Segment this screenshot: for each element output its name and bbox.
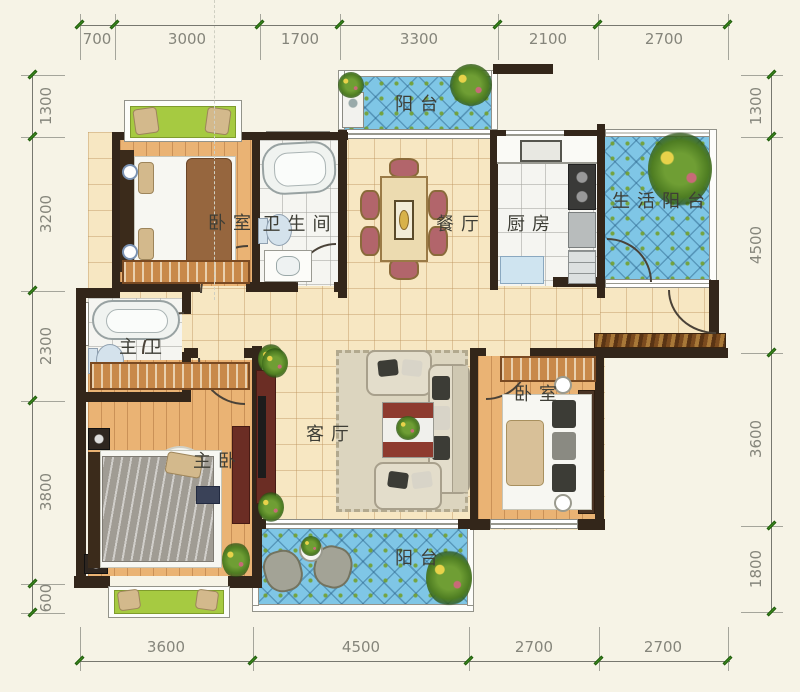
room-label-master-bath: 主卫 bbox=[119, 333, 169, 359]
dim-bottom-1: 4500 bbox=[342, 638, 380, 656]
dim-ext bbox=[741, 353, 783, 354]
dim-left-4: 600 bbox=[37, 584, 55, 613]
dim-top-3: 3300 bbox=[400, 30, 438, 48]
room-label-bedroom-top: 卧室 bbox=[208, 209, 258, 235]
plant bbox=[450, 64, 492, 106]
dining-chair bbox=[389, 158, 419, 178]
wall-segment bbox=[597, 124, 605, 298]
dim-line-bottom bbox=[80, 661, 730, 662]
wall-segment bbox=[74, 576, 110, 588]
dining-table bbox=[380, 176, 428, 262]
dim-line-top bbox=[80, 25, 730, 26]
wall-segment bbox=[597, 348, 728, 358]
sofa-cushion bbox=[387, 471, 409, 490]
room-label-living: 客厅 bbox=[306, 420, 356, 446]
dim-top-4: 2100 bbox=[529, 30, 567, 48]
bed-pillow-dark bbox=[552, 464, 576, 492]
dim-right-0: 1300 bbox=[747, 87, 765, 125]
bed-pillow-gray bbox=[552, 432, 576, 460]
wall-segment bbox=[334, 282, 347, 292]
sofa-cushion bbox=[401, 359, 423, 377]
bed-blanket bbox=[506, 420, 544, 486]
dim-right-2: 3600 bbox=[747, 420, 765, 458]
table-vase bbox=[399, 210, 409, 230]
entry-mat bbox=[594, 333, 726, 348]
dim-top-2: 1700 bbox=[281, 30, 319, 48]
tv bbox=[258, 396, 266, 478]
dim-left-3: 3800 bbox=[37, 473, 55, 511]
sofa-cushion bbox=[432, 376, 450, 400]
balcony-bottom-rail bbox=[252, 604, 474, 612]
sofa-cushion bbox=[432, 436, 450, 460]
master-wardrobe bbox=[90, 362, 250, 390]
bedside-lamp bbox=[122, 244, 138, 260]
dim-line-left bbox=[32, 75, 33, 613]
dim-line-right bbox=[771, 75, 772, 612]
room-label-bedroom-right: 卧室 bbox=[514, 380, 564, 406]
folded-clothes bbox=[196, 486, 220, 504]
wall-segment bbox=[578, 519, 605, 530]
coffee-table-accent bbox=[383, 442, 433, 457]
master-bathtub-inner bbox=[106, 309, 168, 333]
wall-segment bbox=[530, 348, 595, 356]
room-label-service-balcony: 生活阳台 bbox=[612, 187, 712, 213]
dim-bottom-3: 2700 bbox=[644, 638, 682, 656]
wall-segment bbox=[76, 288, 86, 588]
plant bbox=[338, 72, 364, 98]
room-label-balcony-top: 阳台 bbox=[395, 90, 445, 116]
bed-pillow bbox=[138, 162, 154, 194]
sofa-cushion bbox=[411, 471, 433, 490]
room-label-balcony-bottom: 阳台 bbox=[395, 544, 445, 570]
dim-ext bbox=[599, 627, 600, 671]
room-label-kitchen: 厨房 bbox=[507, 210, 557, 236]
dim-right-1: 4500 bbox=[747, 226, 765, 264]
dim-bottom-2: 2700 bbox=[515, 638, 553, 656]
floor-plan: 卧室 卫生间 阳台 餐厅 厨房 生活阳台 主卫 主卧 客厅 卧室 阳台 700 … bbox=[0, 0, 800, 692]
bay-pillow bbox=[117, 589, 142, 612]
dim-left-2: 2300 bbox=[37, 327, 55, 365]
room-label-master-bedroom: 主卧 bbox=[193, 447, 243, 473]
service-balcony-window bbox=[605, 129, 717, 137]
dim-top-5: 2700 bbox=[645, 30, 683, 48]
kitchen-sink bbox=[520, 140, 562, 162]
oven bbox=[568, 212, 596, 248]
dim-left-0: 1300 bbox=[37, 87, 55, 125]
kitchen-drawers bbox=[568, 250, 596, 284]
dim-bottom-0: 3600 bbox=[147, 638, 185, 656]
wall-segment bbox=[493, 64, 553, 74]
wall-segment bbox=[338, 130, 347, 298]
sofa-loveseat-top bbox=[366, 350, 432, 396]
dim-ext bbox=[80, 627, 81, 671]
wardrobe bbox=[122, 260, 250, 284]
bed-pillow bbox=[138, 228, 154, 260]
bathtub-inner bbox=[273, 151, 327, 188]
dim-ext bbox=[469, 627, 470, 671]
balcony-top-rail-right bbox=[491, 70, 498, 130]
dining-balcony-slider bbox=[346, 129, 491, 139]
plant bbox=[222, 542, 250, 578]
dining-chair bbox=[360, 190, 380, 220]
dim-right-3: 1800 bbox=[747, 550, 765, 588]
wall-segment bbox=[80, 392, 184, 402]
wall-segment bbox=[478, 348, 486, 356]
room-label-dining: 餐厅 bbox=[436, 210, 486, 236]
bay-pillow bbox=[204, 106, 231, 135]
plant bbox=[396, 416, 420, 440]
wall-segment bbox=[252, 519, 266, 529]
dim-ext bbox=[741, 612, 783, 613]
dim-ext bbox=[741, 526, 783, 527]
master-tv-cabinet bbox=[232, 426, 250, 524]
fridge bbox=[500, 256, 544, 284]
dim-top-1: 3000 bbox=[168, 30, 206, 48]
dim-ext bbox=[253, 627, 254, 671]
sink-basin bbox=[276, 256, 300, 276]
plant bbox=[262, 348, 288, 378]
bedside-stool bbox=[554, 494, 572, 512]
wall-segment bbox=[244, 348, 252, 358]
sofa-cushion bbox=[377, 359, 399, 377]
plant bbox=[258, 492, 284, 522]
dim-ext bbox=[728, 627, 729, 671]
cad-guide-line bbox=[214, 0, 215, 300]
sofa-cushion bbox=[432, 406, 450, 430]
dim-ext bbox=[741, 75, 783, 76]
bathtub bbox=[261, 140, 338, 196]
stove bbox=[568, 164, 596, 210]
sink-cabinet bbox=[264, 250, 312, 282]
bay-pillow bbox=[132, 106, 159, 135]
wall-segment bbox=[470, 348, 478, 530]
wall-segment bbox=[595, 348, 604, 530]
sofa-back bbox=[452, 366, 468, 492]
bay-pillow bbox=[195, 589, 220, 612]
dim-ext bbox=[741, 137, 783, 138]
dining-chair bbox=[360, 226, 380, 256]
nightstand bbox=[88, 428, 110, 450]
living-balcony-slider bbox=[264, 519, 460, 529]
wall-segment bbox=[246, 282, 298, 292]
bedroom-right-window bbox=[490, 519, 578, 529]
room-label-bathroom: 卫生间 bbox=[263, 210, 338, 236]
wall-segment bbox=[112, 132, 120, 298]
wall-segment bbox=[182, 288, 191, 314]
dim-left-1: 3200 bbox=[37, 195, 55, 233]
plant bbox=[301, 536, 321, 556]
bedside-lamp bbox=[122, 164, 138, 180]
master-headboard bbox=[88, 452, 100, 568]
wardrobe bbox=[500, 356, 596, 382]
wall-segment bbox=[458, 519, 474, 529]
dim-top-0: 700 bbox=[83, 30, 112, 48]
